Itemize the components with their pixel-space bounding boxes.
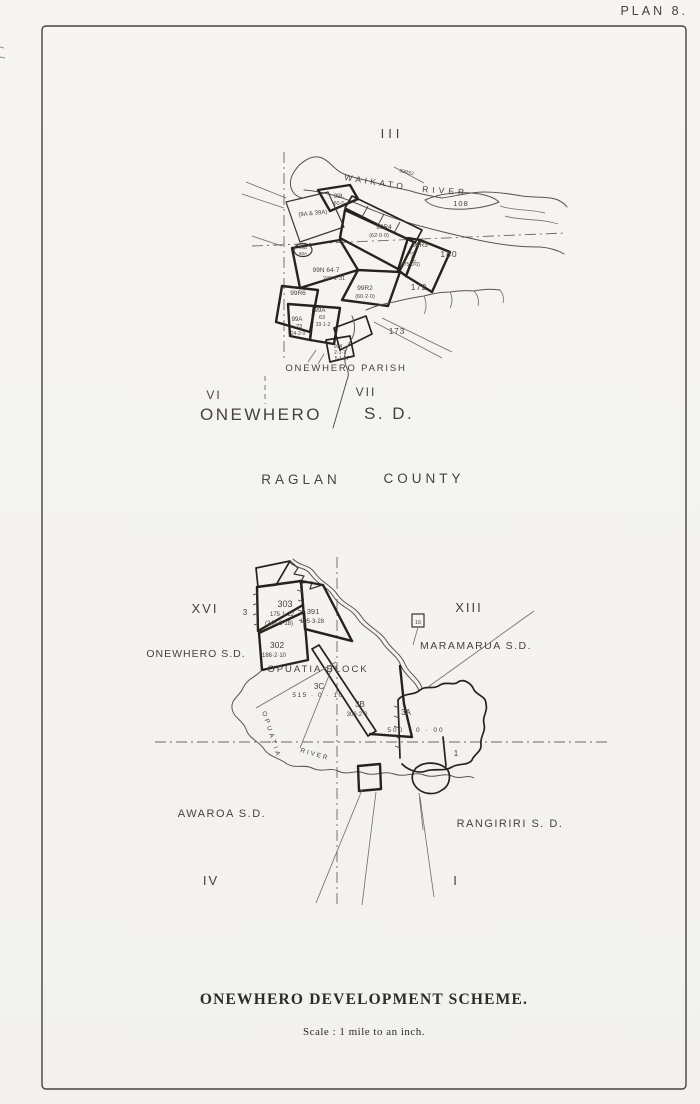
label-108: 108 bbox=[453, 199, 469, 208]
label-3A-area: 500 · 0 · 00 bbox=[387, 727, 444, 734]
label-303-area2: (242·3·18) bbox=[265, 621, 293, 627]
river-extra-channels bbox=[500, 206, 558, 224]
lower-map: XVI XIII ONEWHERO S.D. MARAMARUA S.D. OP… bbox=[146, 557, 610, 906]
label-99A-east-area: 33·1·2 bbox=[316, 322, 331, 328]
small-parcel-below-river bbox=[358, 764, 381, 791]
label-99B-area: 60A bbox=[299, 251, 307, 256]
label-180: 180 bbox=[440, 249, 457, 259]
county-word-county: COUNTY bbox=[384, 471, 465, 486]
scale-note: Scale : 1 mile to an inch. bbox=[303, 1026, 425, 1038]
sd-name-onewhero: ONEWHERO bbox=[200, 405, 322, 424]
scan-edge-artifact bbox=[0, 47, 5, 58]
label-99A-west-2: 23 bbox=[296, 324, 302, 330]
label-99L: 99L bbox=[334, 193, 345, 200]
section-16-leader bbox=[413, 627, 418, 645]
plan-drawing: PLAN 8. I bbox=[0, 0, 700, 1104]
numeral-vi: VI bbox=[206, 388, 221, 402]
label-99B: 99B bbox=[299, 245, 307, 250]
label-3C: 3C bbox=[314, 682, 324, 691]
parish-label: ONEWHERO PARISH bbox=[285, 363, 406, 374]
label-99N: 99N 64·7 bbox=[313, 267, 340, 274]
numeral-iv: IV bbox=[203, 873, 219, 888]
label-99R52: 99R52 bbox=[399, 168, 415, 177]
sd-label-onewhero: ONEWHERO S.D. bbox=[146, 648, 245, 660]
road-lines-northwest bbox=[242, 182, 286, 246]
title-block: ONEWHERO DEVELOPMENT SCHEME. Scale : 1 m… bbox=[200, 991, 528, 1038]
label-3B-area: 306·2·0 bbox=[347, 712, 368, 718]
label-99R4: 99R4 bbox=[376, 224, 392, 231]
label-172: 172 bbox=[411, 283, 427, 292]
scanned-plan-sheet: PLAN 8. I bbox=[0, 0, 700, 1104]
label-99R2: 99R2 bbox=[357, 285, 373, 292]
radiating-survey-lines bbox=[316, 790, 434, 905]
numeral-i: I bbox=[453, 873, 459, 888]
label-303: 303 bbox=[277, 599, 292, 609]
label-3A: 3A bbox=[401, 708, 411, 717]
numeral-xvi: XVI bbox=[192, 601, 219, 616]
label-99A-west: 99A bbox=[292, 317, 303, 323]
label-173: 173 bbox=[389, 327, 405, 336]
label-99A-east-2: 63 bbox=[319, 315, 325, 321]
label-1-edge: 1 bbox=[454, 749, 459, 758]
label-99R4-area: (62·0·0) bbox=[369, 233, 389, 239]
river-name-river-lower: RIVER bbox=[299, 747, 330, 762]
sheet-border bbox=[42, 26, 686, 1089]
label-391-area: 195·3·28 bbox=[300, 619, 325, 625]
label-99N-area: 249·1·31 bbox=[323, 276, 345, 282]
sd-label-maramarua: MARAMARUA S.D. bbox=[420, 640, 532, 652]
numeral-vii: VII bbox=[356, 385, 377, 399]
district-numeral-iii: III bbox=[381, 126, 404, 141]
label-3C-area: 515 · 0 · 10 bbox=[292, 692, 343, 699]
label-9A-39A: (9A & 39A) bbox=[298, 210, 327, 219]
river-bank-hook bbox=[290, 172, 302, 198]
label-99R3: 99R3 bbox=[412, 242, 428, 249]
blob-parcel-southeast bbox=[412, 763, 449, 793]
boundary-segment-east bbox=[443, 737, 446, 766]
sd-label-rangiriri: RANGIRIRI S. D. bbox=[457, 818, 564, 830]
label-99A-west-area: 24·2·0 bbox=[291, 331, 306, 337]
label-99R2-area: (60·2·0) bbox=[355, 294, 375, 300]
label-99A-east: 99A bbox=[315, 308, 326, 314]
label-99L-area: 60·0 bbox=[333, 201, 344, 207]
label-3-edge: 3 bbox=[243, 608, 248, 617]
label-99R3-area: (75·0·0) bbox=[402, 262, 420, 268]
label-16: 16 bbox=[415, 620, 421, 626]
county-word-raglan: RAGLAN bbox=[261, 472, 341, 487]
label-994-area2: 5·1·07 bbox=[335, 356, 350, 362]
block-label-opuatia: OPUATIA BLOCK bbox=[267, 664, 368, 675]
sd-label-awaroa: AWAROA S.D. bbox=[178, 808, 266, 820]
upper-map: III WAIKATO RIVER 99R52 108 99L 60·0 (9A… bbox=[200, 126, 567, 487]
plan-number-label: PLAN 8. bbox=[620, 4, 688, 18]
label-99R6: 99R6 bbox=[290, 290, 306, 297]
label-302-area: 186·2·10 bbox=[262, 653, 287, 659]
label-391: 391 bbox=[307, 607, 320, 616]
numeral-xiii: XIII bbox=[455, 600, 483, 615]
plan-title: ONEWHERO DEVELOPMENT SCHEME. bbox=[200, 991, 528, 1008]
label-3B: 3B bbox=[355, 700, 365, 709]
river-name-opuatia: OPUATIA bbox=[260, 710, 282, 759]
label-303-area: 175·1·12 bbox=[270, 612, 295, 618]
sd-suffix: S. D. bbox=[364, 404, 414, 423]
label-302: 302 bbox=[270, 640, 284, 650]
